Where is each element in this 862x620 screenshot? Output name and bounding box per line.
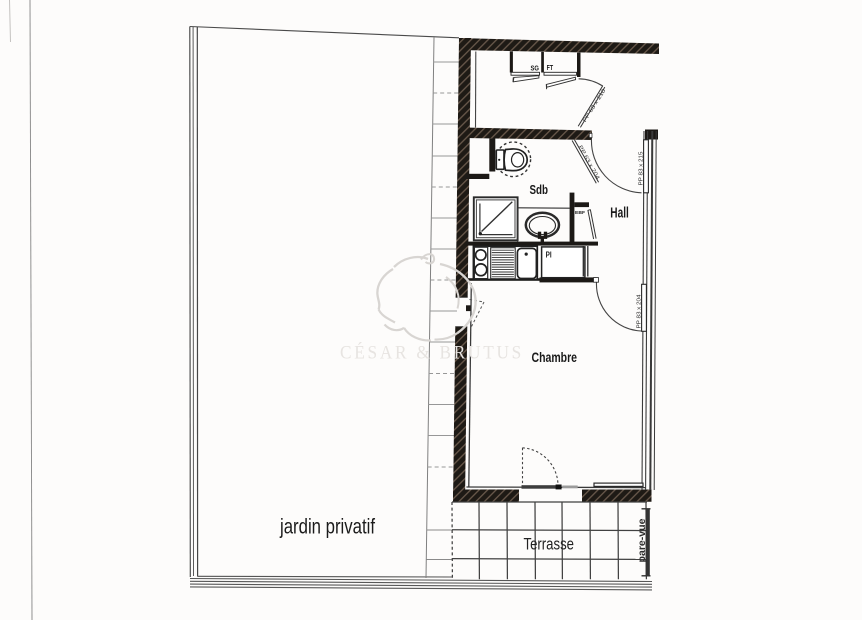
svg-text:Chambre: Chambre	[532, 349, 578, 365]
svg-text:pare-vue: pare-vue	[637, 518, 648, 563]
svg-text:PP 83 x 215: PP 83 x 215	[638, 152, 644, 186]
svg-text:CÉSAR & BRUTUS: CÉSAR & BRUTUS	[340, 342, 524, 364]
svg-text:Sdb: Sdb	[530, 183, 549, 197]
svg-text:Terrasse: Terrasse	[524, 536, 575, 554]
svg-text:Hall: Hall	[610, 205, 629, 221]
svg-text:jardin privatif: jardin privatif	[279, 516, 375, 539]
svg-text:EBF: EBF	[575, 210, 585, 215]
svg-text:FT: FT	[547, 63, 554, 72]
svg-text:SG: SG	[531, 64, 540, 73]
svg-text:PI: PI	[546, 250, 552, 259]
svg-text:PP 83 x 204: PP 83 x 204	[636, 295, 642, 329]
